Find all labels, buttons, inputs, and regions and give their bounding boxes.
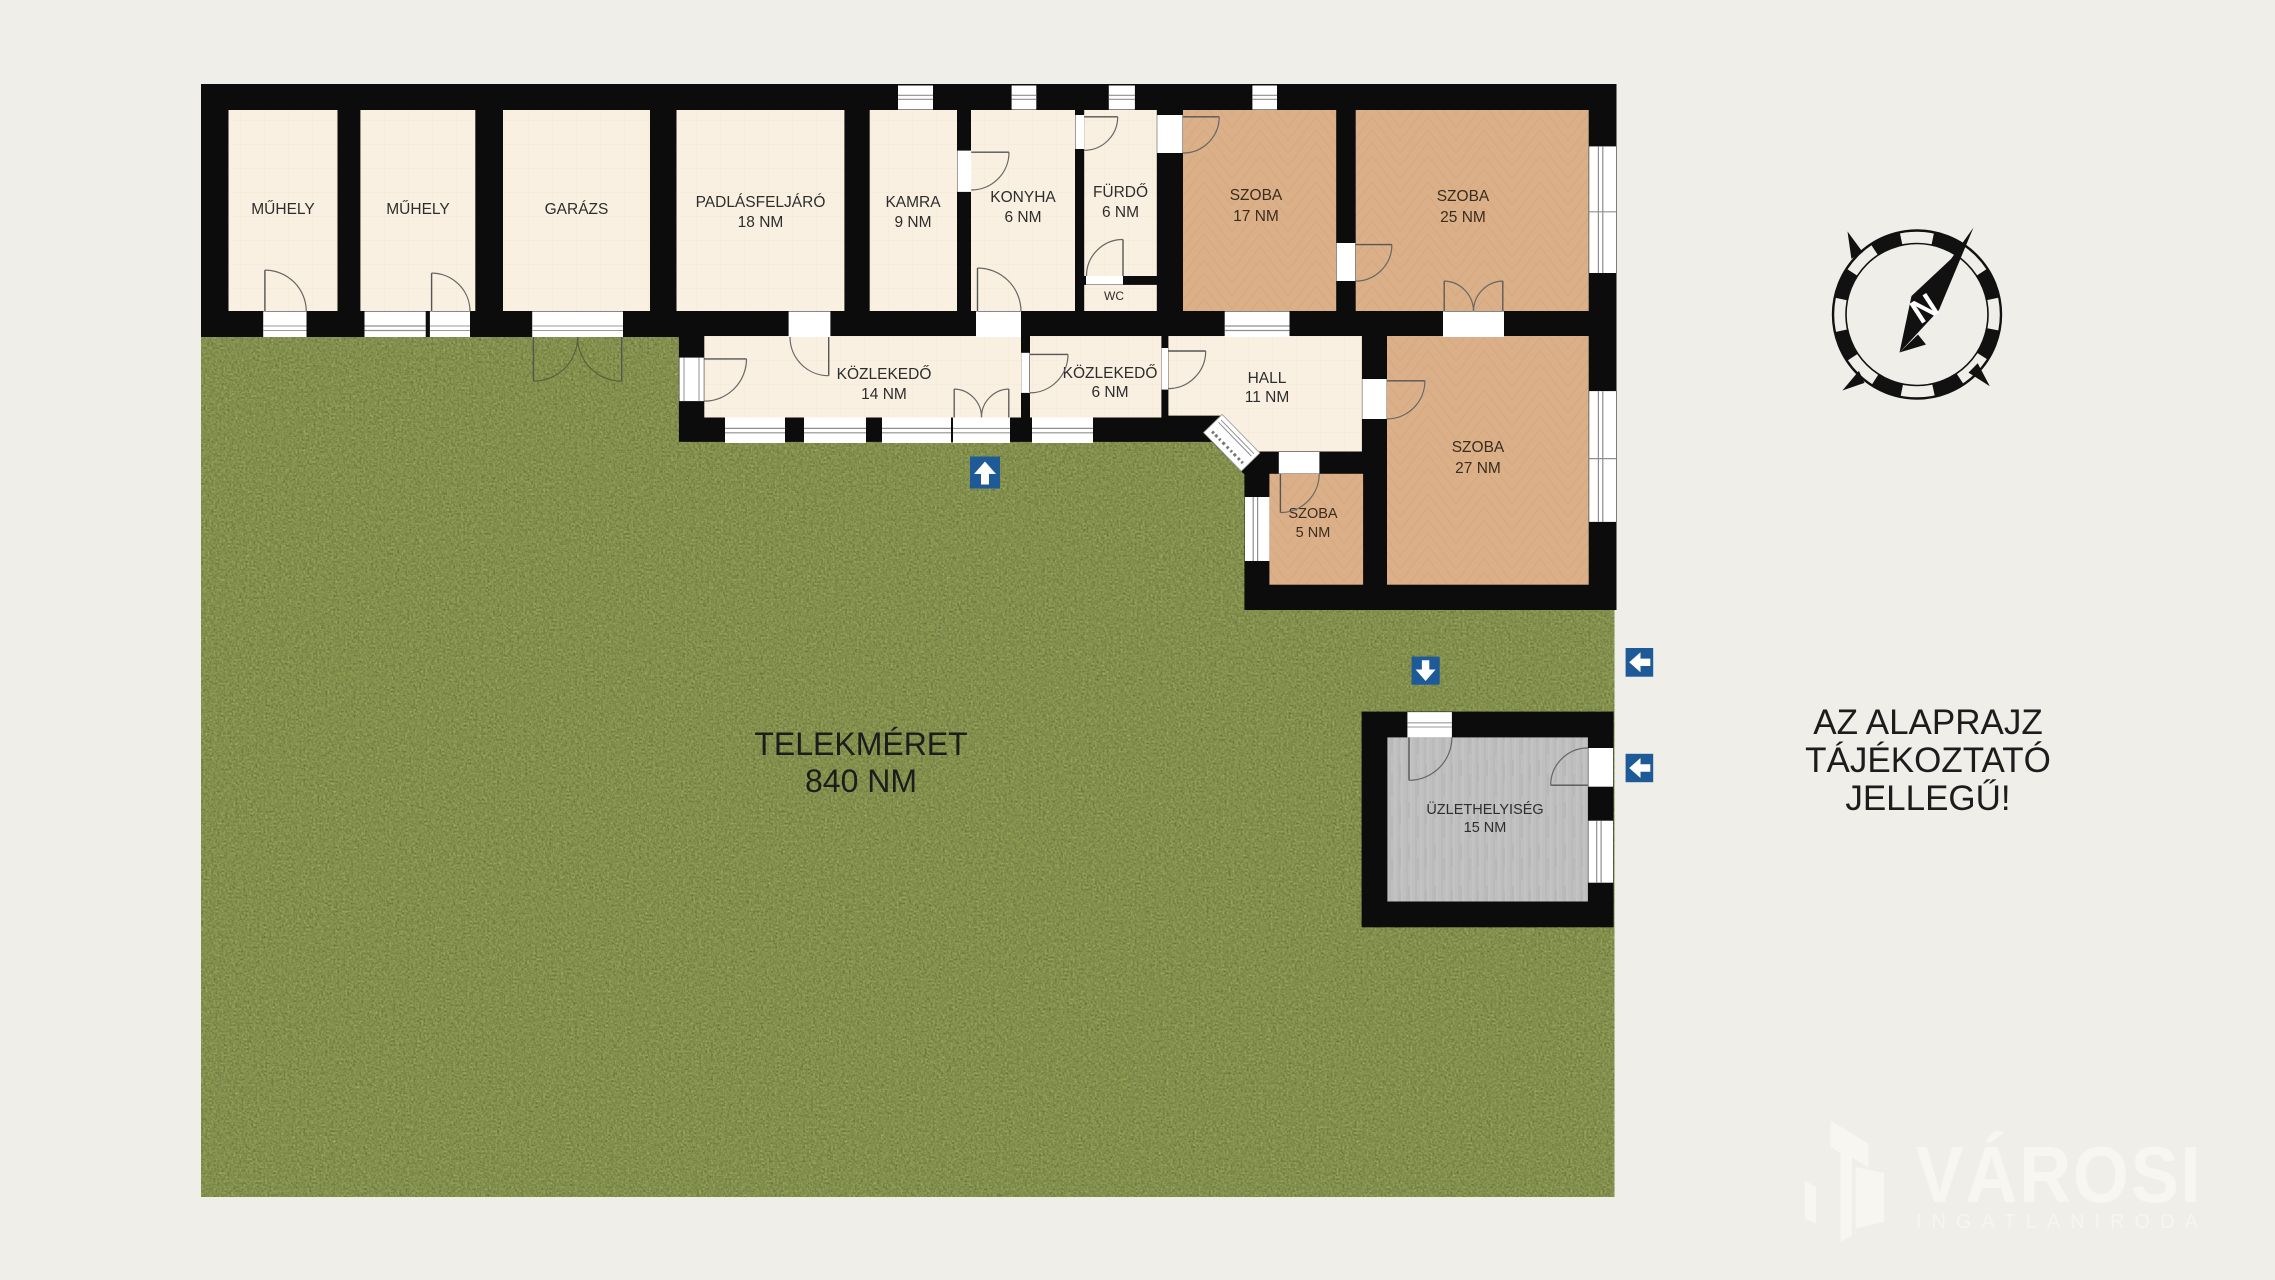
svg-text:KONYHA: KONYHA xyxy=(990,189,1056,206)
svg-text:14 NM: 14 NM xyxy=(861,386,907,403)
svg-text:FÜRDŐ: FÜRDŐ xyxy=(1093,183,1148,201)
svg-text:AZ ALAPRAJZ: AZ ALAPRAJZ xyxy=(1813,703,2043,742)
svg-text:25 NM: 25 NM xyxy=(1440,209,1486,226)
svg-text:17 NM: 17 NM xyxy=(1233,208,1279,225)
svg-text:SZOBA: SZOBA xyxy=(1230,187,1283,204)
svg-text:TÁJÉKOZTATÓ: TÁJÉKOZTATÓ xyxy=(1805,741,2051,780)
svg-text:SZOBA: SZOBA xyxy=(1437,188,1490,205)
svg-text:ÜZLETHELYISÉG: ÜZLETHELYISÉG xyxy=(1426,800,1543,818)
svg-text:KÖZLEKEDŐ: KÖZLEKEDŐ xyxy=(1063,364,1158,382)
svg-text:18 NM: 18 NM xyxy=(738,214,784,231)
svg-text:INGATLANIRODA: INGATLANIRODA xyxy=(1916,1211,2208,1233)
svg-text:HALL: HALL xyxy=(1248,370,1287,387)
svg-text:840 NM: 840 NM xyxy=(805,763,917,799)
svg-text:MŰHELY: MŰHELY xyxy=(251,201,314,218)
svg-text:5 NM: 5 NM xyxy=(1296,525,1331,541)
svg-text:6 NM: 6 NM xyxy=(1091,384,1128,401)
svg-text:9 NM: 9 NM xyxy=(894,214,931,231)
svg-text:27 NM: 27 NM xyxy=(1455,460,1501,477)
svg-text:MŰHELY: MŰHELY xyxy=(386,201,449,218)
svg-text:SZOBA: SZOBA xyxy=(1452,439,1505,456)
svg-text:GARÁZS: GARÁZS xyxy=(545,201,609,218)
svg-text:SZOBA: SZOBA xyxy=(1288,506,1337,522)
svg-text:15 NM: 15 NM xyxy=(1464,820,1507,836)
svg-text:KÖZLEKEDŐ: KÖZLEKEDŐ xyxy=(837,365,932,383)
svg-text:KAMRA: KAMRA xyxy=(885,194,941,211)
svg-text:6 NM: 6 NM xyxy=(1102,204,1139,221)
svg-text:PADLÁSFELJÁRÓ: PADLÁSFELJÁRÓ xyxy=(696,194,826,211)
svg-text:WC: WC xyxy=(1104,289,1124,303)
svg-text:VÁROSI: VÁROSI xyxy=(1916,1131,2203,1220)
svg-text:JELLEGŰ!: JELLEGŰ! xyxy=(1845,779,2010,818)
svg-text:TELEKMÉRET: TELEKMÉRET xyxy=(754,726,967,762)
svg-text:6 NM: 6 NM xyxy=(1004,209,1041,226)
svg-text:11 NM: 11 NM xyxy=(1245,389,1290,406)
